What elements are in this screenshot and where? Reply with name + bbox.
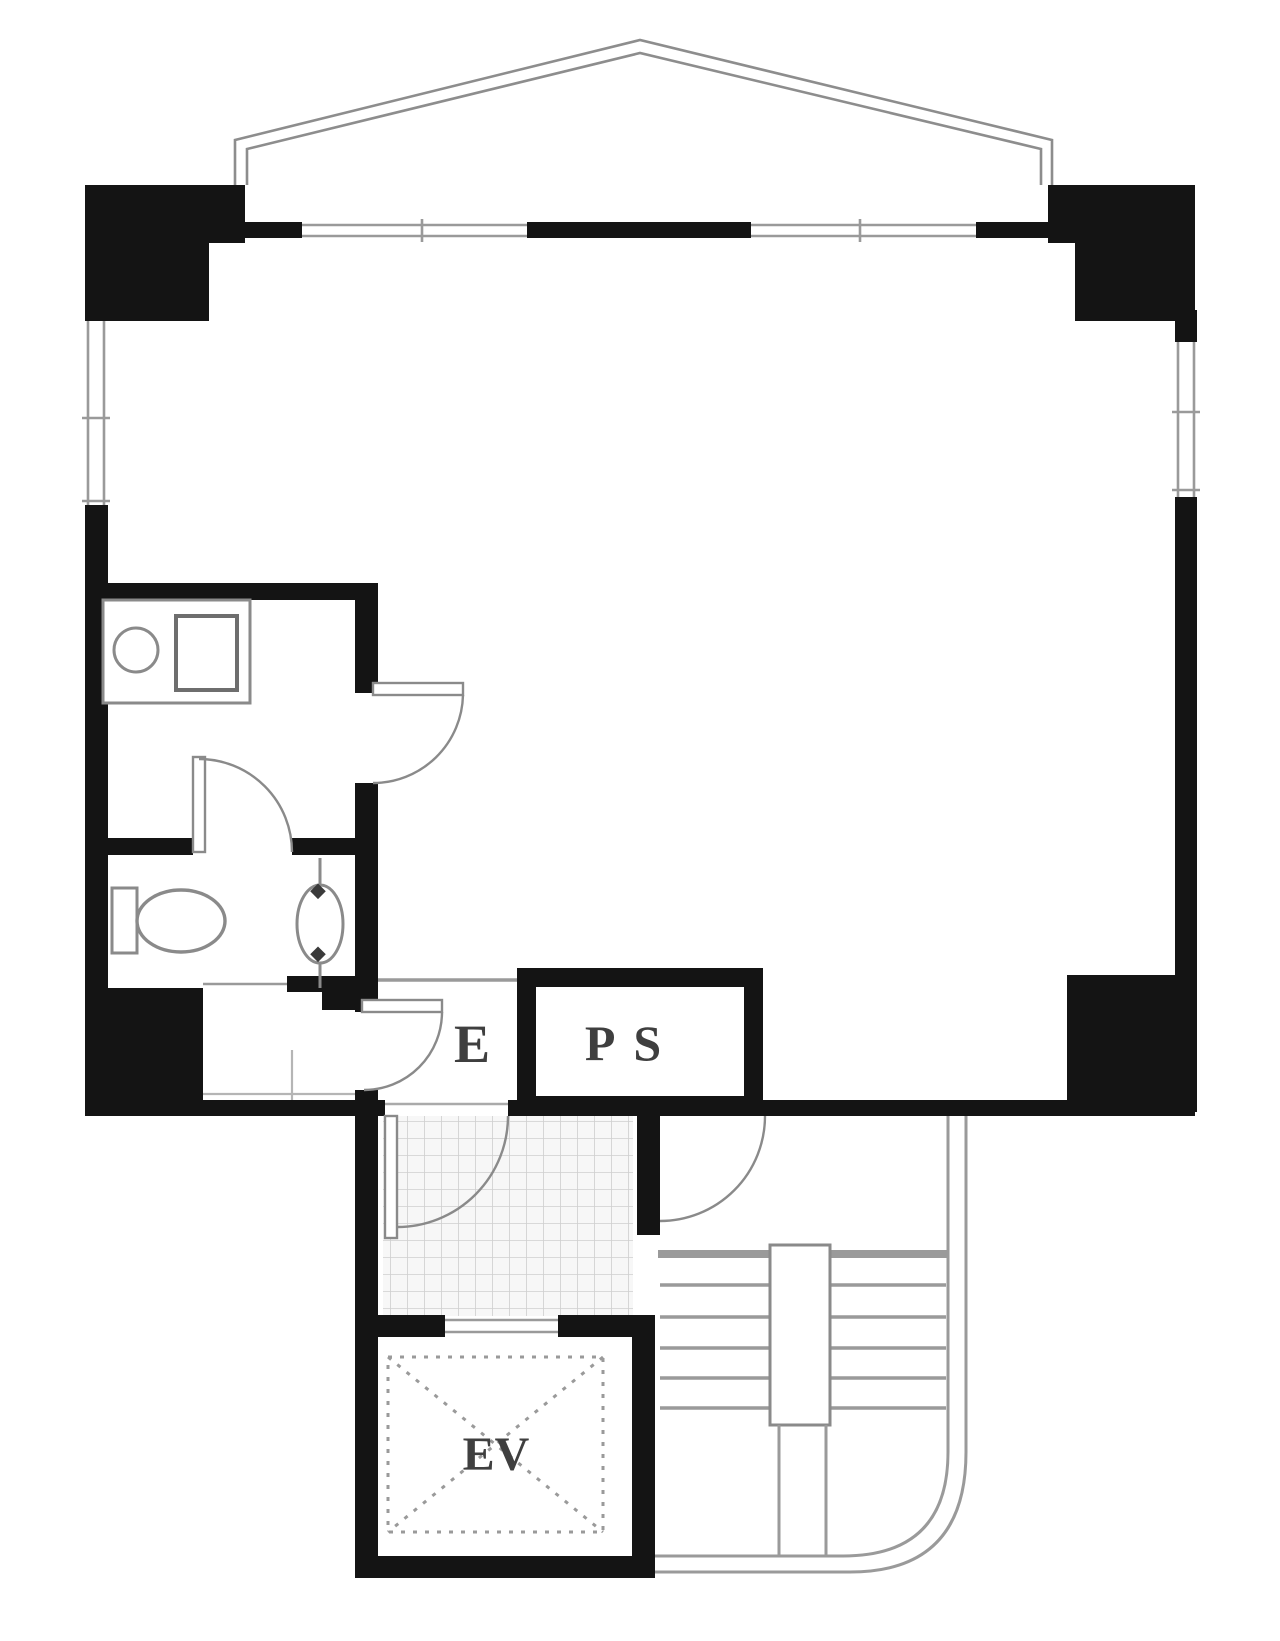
elevator-label: EV xyxy=(463,1428,530,1481)
entry-hall-tiles xyxy=(383,1116,633,1316)
door-leaf xyxy=(362,1000,442,1012)
burner-icon xyxy=(114,628,158,672)
elevator-door-slit xyxy=(445,1320,558,1332)
core-wall-middle xyxy=(355,783,378,1012)
door-swing-arc xyxy=(364,1012,442,1090)
core-wall-upper xyxy=(355,583,378,693)
kitchen-bottom-wall-right xyxy=(292,838,378,855)
kitchen-counter xyxy=(103,600,250,703)
entrance-label: E xyxy=(454,1014,490,1074)
bay-window-outline xyxy=(235,40,1052,185)
floor-plan: E PS xyxy=(0,0,1280,1641)
left-wall-window xyxy=(82,321,110,507)
toilet-bowl-icon xyxy=(137,890,225,952)
right-wall-window xyxy=(1172,342,1200,499)
kitchen-main-door xyxy=(373,683,463,783)
door-leaf xyxy=(373,683,463,695)
column-top-left xyxy=(85,185,245,321)
right-wall-solid xyxy=(1175,497,1197,1112)
door-swing-arc xyxy=(199,759,292,852)
right-wall-stub xyxy=(1175,310,1197,342)
toilet-tank-icon xyxy=(112,888,137,953)
kitchen-top-wall xyxy=(103,583,375,600)
kitchen-interior-door xyxy=(193,757,292,852)
door-swing-arc xyxy=(373,695,463,783)
entrance-door xyxy=(362,1000,442,1090)
kitchen-bottom-wall-left xyxy=(85,838,193,855)
stair-divider xyxy=(770,1245,830,1425)
wash-basin xyxy=(297,884,343,963)
stair-door-leaf xyxy=(637,1116,660,1235)
door-leaf xyxy=(385,1116,397,1238)
stair-divider-rails xyxy=(779,1425,826,1556)
stair-door-swing-arc xyxy=(660,1116,765,1221)
bottom-wall-left xyxy=(85,1100,385,1116)
sink-icon xyxy=(176,616,237,690)
door-leaf xyxy=(193,757,205,852)
pipe-shaft-label: PS xyxy=(585,1015,679,1071)
floor-plan-drawing: E PS xyxy=(0,0,1280,1641)
toilet-fixture xyxy=(112,888,225,953)
column-top-right xyxy=(1048,185,1195,321)
